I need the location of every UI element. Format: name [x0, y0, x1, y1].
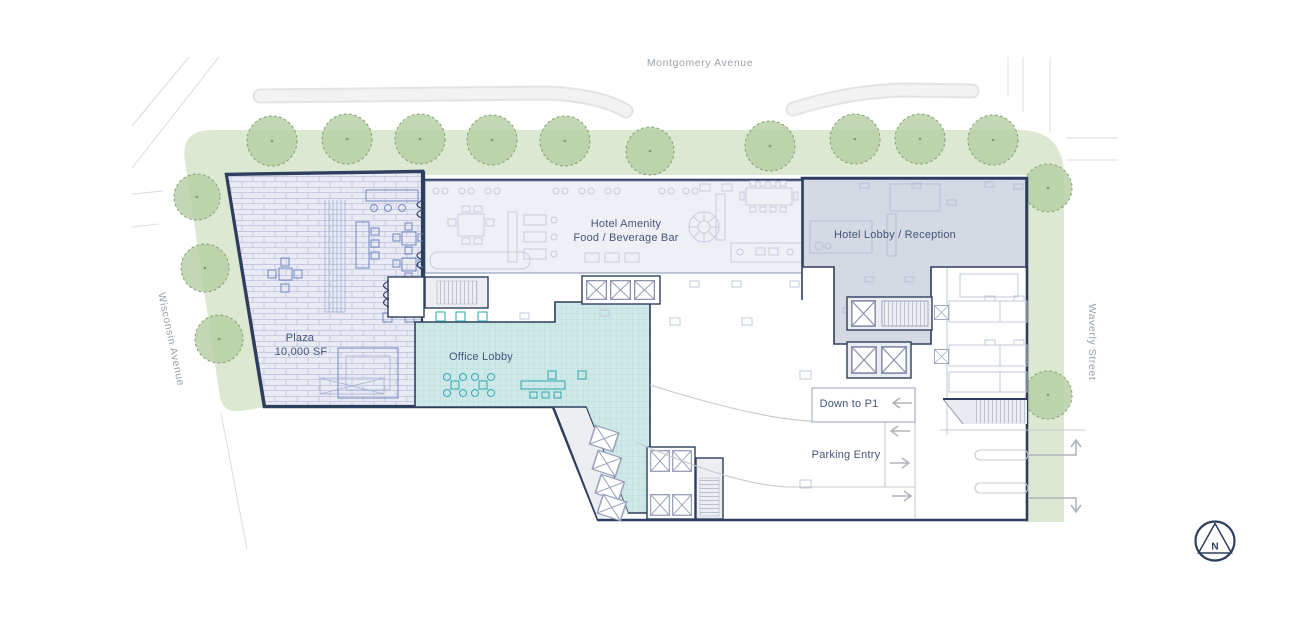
- amenity-stair: [425, 277, 488, 308]
- tree-center-dot: [346, 138, 349, 141]
- tree-center-dot: [491, 139, 494, 142]
- label-plaza-area: 10,000 SF: [275, 346, 328, 358]
- compass-n-label: N: [1211, 542, 1218, 553]
- road-median-west: [260, 93, 626, 111]
- tree-center-dot: [1047, 394, 1050, 397]
- label-hotel-amenity-1: Hotel Amenity: [591, 218, 662, 230]
- hotel-core-a: [847, 297, 932, 330]
- road-median-east: [793, 90, 972, 109]
- mid-elevator-bank: [582, 276, 660, 304]
- tree-center-dot: [271, 140, 274, 143]
- tree-center-dot: [204, 267, 207, 270]
- tree-center-dot: [564, 140, 567, 143]
- label-down-to-p1: Down to P1: [820, 398, 879, 410]
- tree-center-dot: [419, 138, 422, 141]
- site-plan-drawing: Plaza 10,000 SF: [0, 0, 1290, 620]
- hotel-amenity-region: Hotel Amenity Food / Beverage Bar: [425, 181, 803, 273]
- north-compass: N: [1196, 522, 1235, 561]
- tree-center-dot: [218, 338, 221, 341]
- site-plan: Plaza 10,000 SF: [0, 0, 1290, 620]
- tree-center-dot: [854, 138, 857, 141]
- label-plaza: Plaza: [286, 332, 315, 344]
- south-elevator-bank: [647, 447, 695, 519]
- label-montgomery-avenue: Montgomery Avenue: [647, 57, 753, 69]
- tree-center-dot: [196, 196, 199, 199]
- label-parking-entry: Parking Entry: [812, 449, 881, 461]
- tree-center-dot: [769, 145, 772, 148]
- tree-center-dot: [649, 150, 652, 153]
- label-wisconsin-avenue: Wisconsin Avenue: [155, 292, 187, 388]
- office-vestibule: [388, 277, 424, 317]
- tree-center-dot: [919, 138, 922, 141]
- label-waverly-street: Waverly Street: [1086, 304, 1098, 381]
- tree-center-dot: [992, 139, 995, 142]
- label-hotel-amenity-2: Food / Beverage Bar: [573, 232, 678, 244]
- label-office-lobby: Office Lobby: [449, 351, 513, 363]
- label-hotel-lobby: Hotel Lobby / Reception: [834, 229, 956, 241]
- hotel-core-b: [847, 342, 911, 378]
- tree-center-dot: [1047, 187, 1050, 190]
